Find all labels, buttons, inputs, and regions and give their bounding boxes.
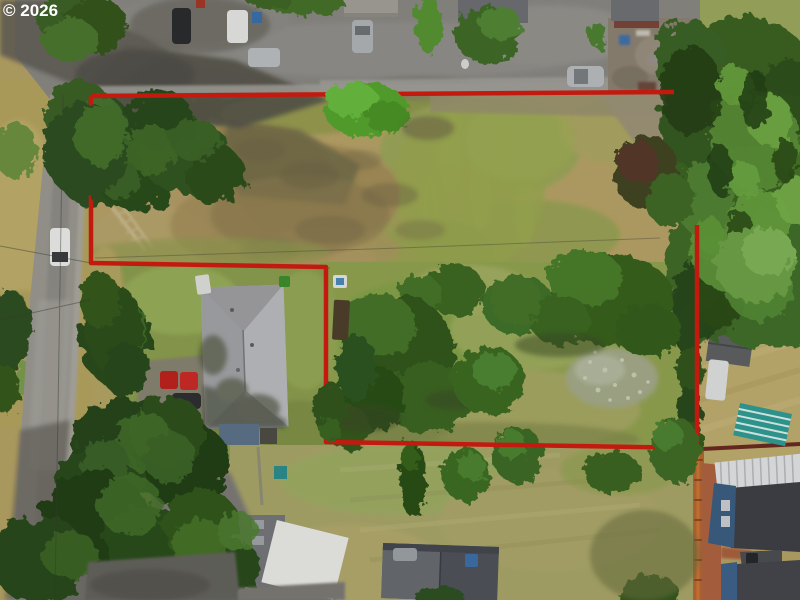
svg-text:© 2026: © 2026 xyxy=(3,1,58,20)
